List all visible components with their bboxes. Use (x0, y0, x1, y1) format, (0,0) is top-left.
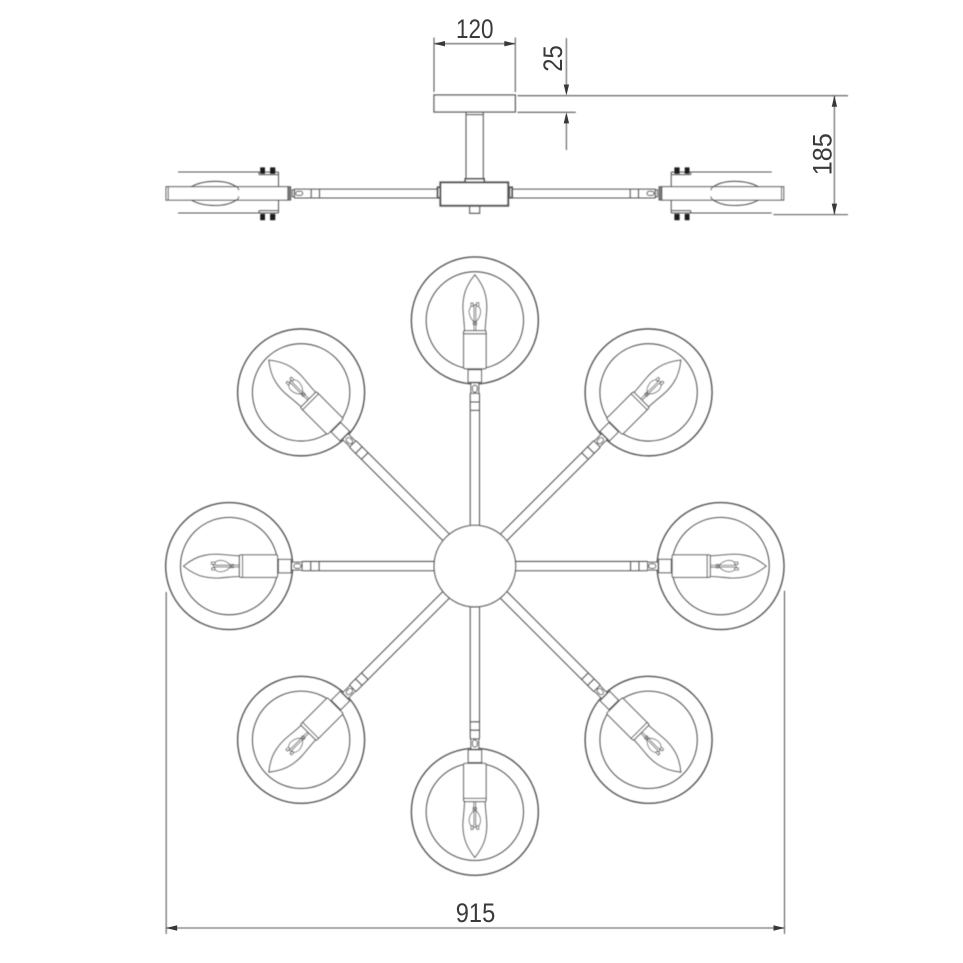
svg-text:25: 25 (538, 45, 568, 72)
svg-text:185: 185 (808, 133, 838, 175)
svg-text:120: 120 (456, 14, 494, 44)
svg-text:915: 915 (456, 898, 496, 928)
